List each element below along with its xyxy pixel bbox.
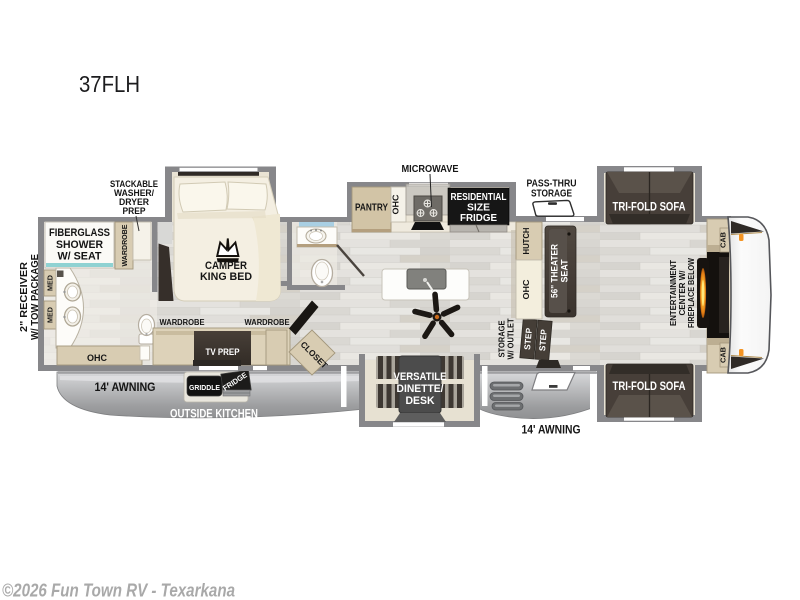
svg-text:FRIDGE: FRIDGE <box>460 212 497 224</box>
svg-text:MED: MED <box>46 275 55 291</box>
svg-text:OHC: OHC <box>392 194 401 214</box>
svg-text:GRIDDLE: GRIDDLE <box>189 383 220 392</box>
svg-text:MED: MED <box>46 307 55 323</box>
svg-text:WARDROBE: WARDROBE <box>120 224 129 266</box>
svg-text:TV PREP: TV PREP <box>206 347 240 357</box>
svg-text:STEP: STEP <box>522 327 534 350</box>
svg-text:PREP: PREP <box>123 206 146 216</box>
svg-text:WARDROBE: WARDROBE <box>160 318 205 327</box>
svg-text:STEP: STEP <box>537 329 549 352</box>
svg-text:OHC: OHC <box>521 280 531 300</box>
svg-text:CAB: CAB <box>719 347 728 363</box>
svg-text:TRI-FOLD SOFA: TRI-FOLD SOFA <box>613 200 686 214</box>
svg-text:OHC: OHC <box>87 353 108 363</box>
svg-text:W/ OUTLET: W/ OUTLET <box>506 318 516 360</box>
svg-text:W/ SEAT: W/ SEAT <box>58 251 102 263</box>
svg-text:WARDROBE: WARDROBE <box>245 318 290 327</box>
svg-text:CAB: CAB <box>719 232 728 248</box>
svg-text:14' AWNING: 14' AWNING <box>95 382 156 394</box>
svg-text:FIREPLACE BELOW: FIREPLACE BELOW <box>686 258 696 328</box>
svg-text:KING BED: KING BED <box>200 271 252 283</box>
svg-text:FIBERGLASS: FIBERGLASS <box>49 227 110 239</box>
svg-text:STORAGE: STORAGE <box>531 189 572 200</box>
svg-text:HUTCH: HUTCH <box>521 228 531 255</box>
svg-text:37FLH: 37FLH <box>79 71 140 97</box>
svg-text:PANTRY: PANTRY <box>355 203 388 214</box>
svg-text:SHOWER: SHOWER <box>56 239 103 251</box>
svg-text:©2026 Fun Town RV - Texarkana: ©2026 Fun Town RV - Texarkana <box>2 581 235 600</box>
svg-text:MICROWAVE: MICROWAVE <box>402 164 459 175</box>
svg-text:DINETTE/: DINETTE/ <box>397 383 444 395</box>
svg-text:14' AWNING: 14' AWNING <box>522 425 581 437</box>
svg-text:TRI-FOLD SOFA: TRI-FOLD SOFA <box>613 379 686 393</box>
svg-text:DESK: DESK <box>406 395 435 407</box>
svg-text:OUTSIDE KITCHEN: OUTSIDE KITCHEN <box>170 407 258 421</box>
svg-text:SEAT: SEAT <box>560 259 570 282</box>
svg-text:VERSATILE: VERSATILE <box>394 371 447 383</box>
svg-text:56" THEATER: 56" THEATER <box>550 244 560 298</box>
